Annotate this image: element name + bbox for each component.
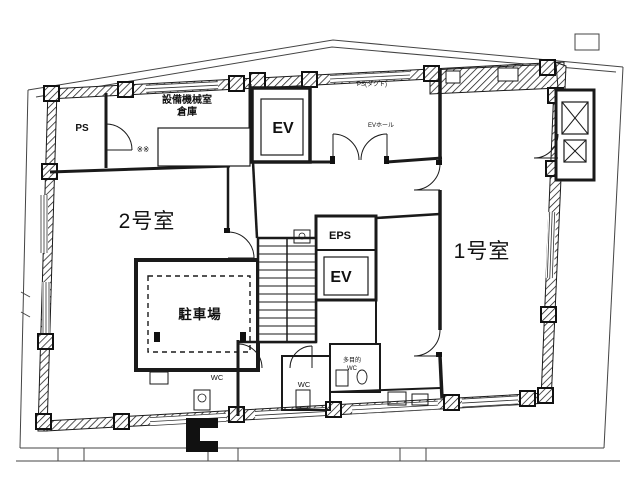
floor-plan-page: 2号室 1号室 駐車場 設備機械室 倉庫 PS EV EPS EV WC WC …: [0, 0, 640, 480]
label-wc-multi-1: 多目的: [343, 356, 361, 364]
label-equipment-room: 設備機械室: [162, 93, 212, 106]
label-room-1: 1号室: [454, 240, 511, 263]
label-elevator-top: EV: [272, 120, 294, 137]
staircase: [258, 238, 316, 342]
label-parking: 駐車場: [178, 306, 222, 322]
label-wc-mid: WC: [298, 380, 311, 389]
label-room-2: 2号室: [119, 210, 176, 233]
label-wc-multi-2: WC: [347, 366, 358, 372]
entrance-step: [186, 418, 218, 452]
label-marks: ※※: [137, 145, 150, 154]
label-pipe-space: PS: [75, 123, 89, 134]
label-ev-hall: EVホール: [368, 122, 394, 129]
label-elevator-mid: EV: [330, 269, 352, 286]
label-storage: 倉庫: [176, 105, 197, 118]
label-duct: PS(ダクト): [357, 80, 387, 88]
label-wc-left: WC: [211, 373, 224, 382]
interior-walls: [50, 68, 594, 416]
floor-plan-canvas: 2号室 1号室 駐車場 設備機械室 倉庫 PS EV EPS EV WC WC …: [0, 0, 640, 480]
label-eps: EPS: [329, 230, 351, 242]
